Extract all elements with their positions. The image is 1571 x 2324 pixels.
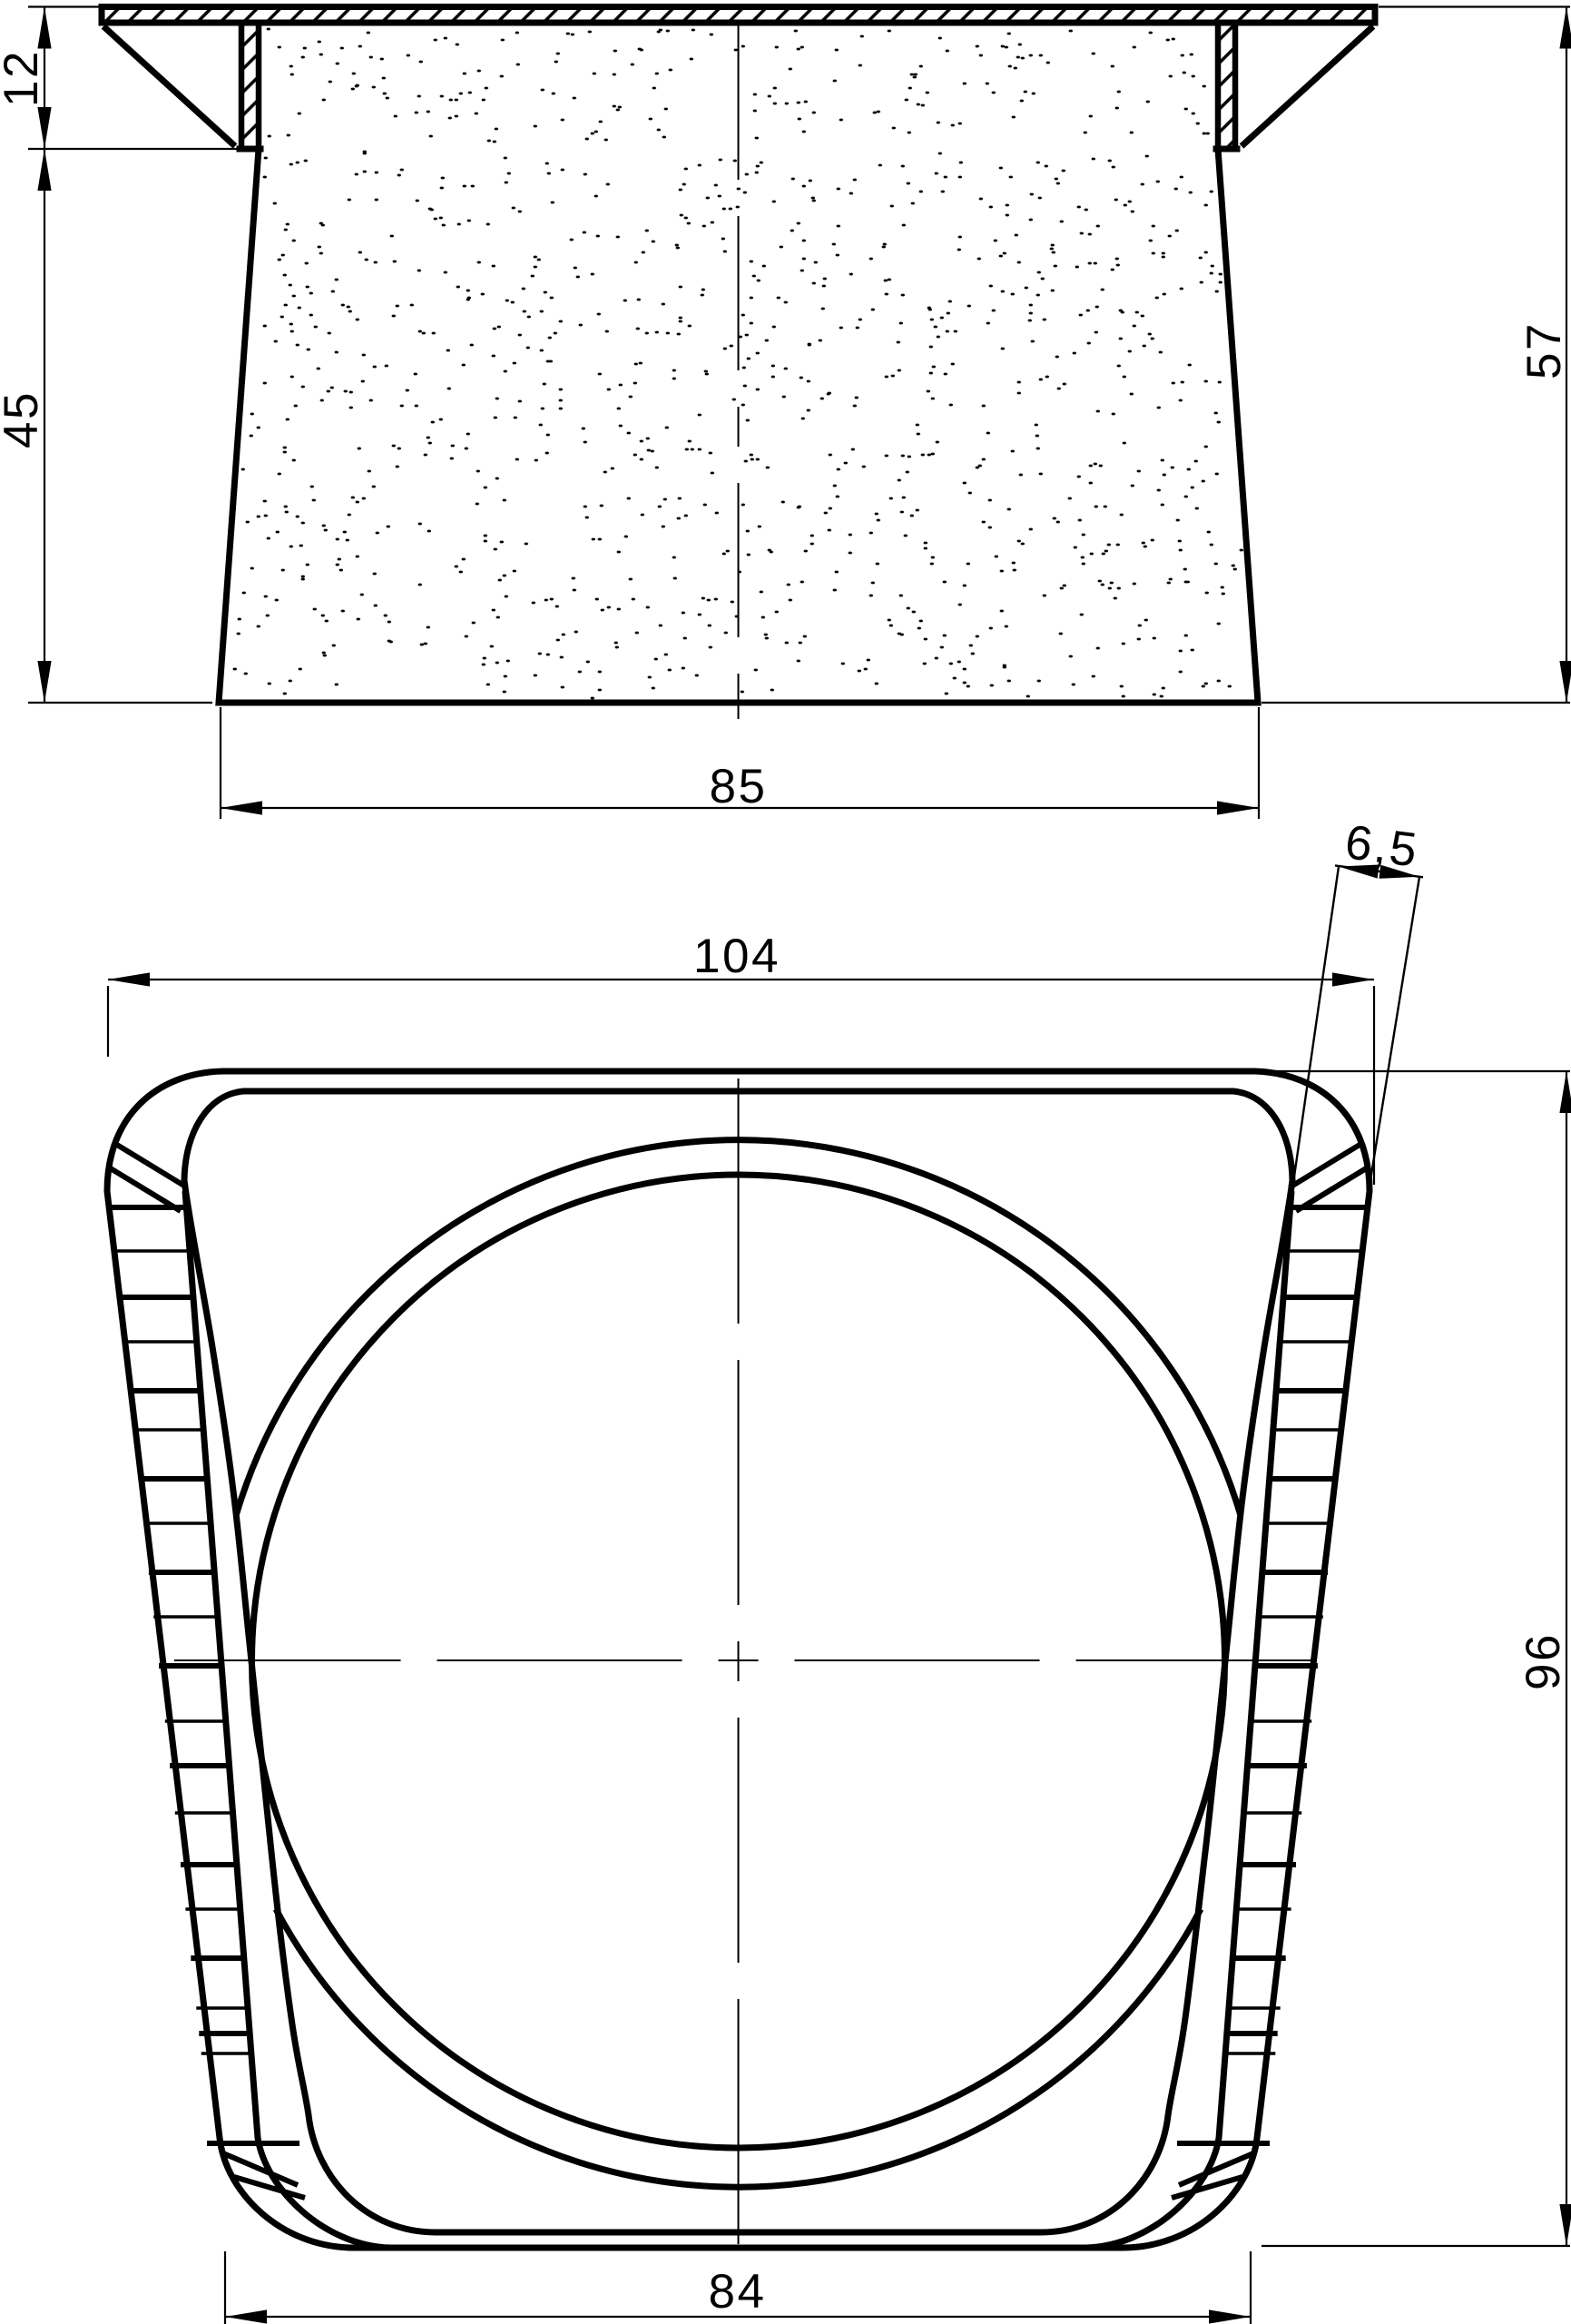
svg-text:104: 104 [693,930,781,983]
svg-text:45: 45 [0,390,48,448]
svg-text:57: 57 [1517,321,1571,379]
svg-text:84: 84 [709,2265,767,2319]
svg-text:6,5: 6,5 [1342,815,1422,878]
svg-text:12: 12 [0,49,48,107]
svg-text:96: 96 [1517,1632,1570,1690]
svg-text:85: 85 [710,760,768,813]
